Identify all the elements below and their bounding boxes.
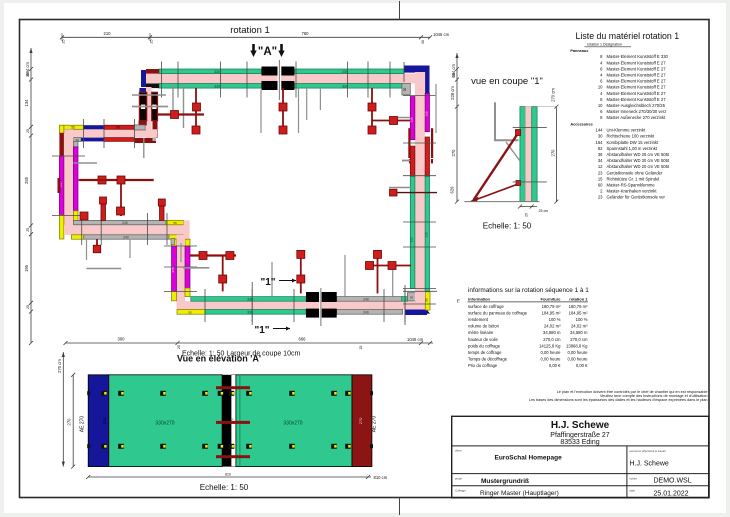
svg-text:55: 55 — [173, 221, 177, 225]
svg-text:25: 25 — [26, 129, 30, 133]
svg-text:vue en coupe "1": vue en coupe "1" — [471, 76, 543, 87]
svg-text:13868,8 Kg: 13868,8 Kg — [566, 343, 588, 348]
svg-text:Master Inneneck 270/30/30 verz: Master Inneneck 270/30/30 verz — [607, 109, 667, 114]
svg-text:25: 25 — [359, 346, 363, 350]
svg-text:Master-Ausgleichsblech 270/25: Master-Ausgleichsblech 270/25 — [607, 103, 666, 108]
svg-text:12: 12 — [598, 164, 603, 169]
svg-text:83533 Eding: 83533 Eding — [560, 439, 599, 446]
svg-text:rotation 1: rotation 1 — [569, 296, 588, 301]
svg-text:25 cm: 25 cm — [539, 209, 549, 213]
svg-text:270,0 cm: 270,0 cm — [543, 337, 561, 342]
svg-text:270: 270 — [67, 418, 72, 426]
svg-text:Echelle: 1: 50: Echelle: 1: 50 — [483, 222, 532, 231]
svg-text:H.J. Schewe: H.J. Schewe — [630, 461, 669, 468]
svg-text:100 %: 100 % — [549, 317, 561, 322]
svg-text:Echelle: 1: 50: Echelle: 1: 50 — [200, 483, 249, 492]
svg-text:134: 134 — [24, 99, 29, 107]
svg-text:184,95 m²: 184,95 m² — [542, 311, 561, 316]
svg-text:10: 10 — [598, 85, 603, 90]
svg-text:poids du coffrage: poids du coffrage — [468, 343, 501, 348]
svg-text:240: 240 — [123, 235, 129, 239]
svg-text:0,00 €: 0,00 € — [576, 363, 588, 368]
svg-text:810: 810 — [225, 473, 231, 477]
svg-text:Vue en élévation 'A': Vue en élévation 'A' — [177, 354, 261, 364]
svg-text:240: 240 — [363, 297, 369, 301]
svg-text:270,0 cm: 270,0 cm — [570, 337, 588, 342]
svg-text:25.01.2022: 25.01.2022 — [654, 490, 689, 497]
svg-text:Master-RS-Spannklemme: Master-RS-Spannklemme — [607, 183, 656, 188]
svg-text:34,580 m: 34,580 m — [543, 330, 561, 335]
svg-text:date: date — [630, 489, 636, 493]
svg-text:240: 240 — [363, 310, 369, 314]
svg-text:30: 30 — [452, 73, 456, 77]
svg-text:Geländer für Gerüstkonsole ver: Geländer für Gerüstkonsole ver — [607, 195, 666, 200]
svg-text:23: 23 — [598, 195, 603, 200]
svg-text:0,00 €: 0,00 € — [549, 363, 561, 368]
svg-text:Temps de décoffrage: Temps de décoffrage — [468, 356, 508, 361]
svg-text:210: 210 — [104, 31, 112, 36]
svg-text:34: 34 — [598, 158, 603, 163]
svg-text:Prix du coffrage: Prix du coffrage — [468, 363, 498, 368]
svg-text:55: 55 — [425, 298, 429, 302]
svg-text:760: 760 — [302, 31, 310, 36]
svg-text:810 cm: 810 cm — [374, 475, 388, 480]
svg-text:270: 270 — [358, 417, 363, 424]
svg-text:fichier: fichier — [630, 477, 638, 481]
svg-text:228 cm: 228 cm — [450, 86, 455, 100]
svg-text:195: 195 — [24, 264, 29, 272]
svg-text:Master Außenecke 270 verzinkt: Master Außenecke 270 verzinkt — [607, 115, 666, 120]
svg-text:Spannstahl 1,00 m verzinkt: Spannstahl 1,00 m verzinkt — [607, 146, 658, 151]
svg-text:100 %: 100 % — [576, 317, 588, 322]
svg-text:surface de coffrage: surface de coffrage — [468, 304, 504, 309]
svg-text:rendement: rendement — [468, 317, 489, 322]
svg-text:"A": "A" — [258, 46, 277, 58]
svg-text:60: 60 — [598, 183, 603, 188]
svg-text:180,79 m²: 180,79 m² — [569, 304, 588, 309]
svg-text:Richtstütze Gr. 1 mit Spindel: Richtstütze Gr. 1 mit Spindel — [607, 176, 660, 181]
svg-text:36: 36 — [598, 152, 603, 157]
svg-text:Fourniture: Fourniture — [541, 296, 562, 301]
svg-text:rotation 1 Désignation: rotation 1 Désignation — [587, 42, 622, 46]
svg-text:240: 240 — [122, 221, 128, 225]
svg-text:Gerüstkonsole ohne Geländer: Gerüstkonsole ohne Geländer — [607, 170, 663, 175]
svg-text:15: 15 — [598, 176, 603, 181]
svg-text:Master-Element Kunststoff E 27: Master-Element Kunststoff E 27 — [607, 91, 667, 96]
svg-text:330: 330 — [214, 84, 220, 88]
svg-text:82: 82 — [598, 146, 603, 151]
svg-text:Master-Kranhaken verzinkt: Master-Kranhaken verzinkt — [607, 189, 658, 194]
svg-text:hauteur de voile: hauteur de voile — [468, 337, 498, 342]
svg-text:25: 25 — [177, 345, 181, 349]
svg-text:projet: projet — [455, 477, 462, 481]
svg-text:25: 25 — [525, 213, 529, 217]
svg-text:temps de coffrage: temps de coffrage — [468, 350, 502, 355]
svg-text:"1": "1" — [254, 325, 269, 336]
svg-text:surface du panneau de coffrage: surface du panneau de coffrage — [468, 311, 528, 316]
svg-text:0,00 heure: 0,00 heure — [567, 356, 588, 361]
svg-text:130: 130 — [424, 111, 428, 116]
svg-text:30: 30 — [598, 134, 603, 139]
svg-text:0,00 heure: 0,00 heure — [567, 350, 588, 355]
svg-text:Les bases des dimensions sont: Les bases des dimensions sont les épaiss… — [529, 398, 708, 402]
svg-text:184,95 m²: 184,95 m² — [569, 311, 588, 316]
svg-text:Master-Element Kunststoff E 27: Master-Element Kunststoff E 27 — [607, 73, 667, 78]
svg-text:Kombiplatte DW 15 verzinkt: Kombiplatte DW 15 verzinkt — [607, 140, 660, 145]
svg-text:Panneaux: Panneaux — [570, 49, 589, 53]
svg-text:rotation 1: rotation 1 — [230, 25, 270, 36]
svg-text:DEMO.WSL: DEMO.WSL — [654, 477, 692, 484]
svg-text:25: 25 — [26, 228, 30, 232]
svg-text:34,580 m: 34,580 m — [570, 330, 588, 335]
svg-text:144: 144 — [596, 128, 604, 133]
svg-text:330x270: 330x270 — [283, 421, 302, 427]
svg-text:mètre linéaire: mètre linéaire — [468, 330, 494, 335]
svg-text:95: 95 — [116, 126, 120, 130]
svg-text:180,79 m²: 180,79 m² — [542, 304, 561, 309]
svg-text:Abstandhalter WD 25 cm VE 505t: Abstandhalter WD 25 cm VE 505t — [607, 152, 670, 157]
svg-text:330: 330 — [342, 84, 348, 88]
svg-text:Master-Element Kunststoff E 27: Master-Element Kunststoff E 27 — [607, 97, 667, 102]
svg-text:1045 cm: 1045 cm — [433, 32, 450, 37]
svg-text:130: 130 — [410, 117, 414, 122]
svg-text:H.J. Schewe: H.J. Schewe — [551, 420, 610, 431]
svg-text:270 cm: 270 cm — [57, 359, 62, 373]
svg-text:Coffrage: Coffrage — [455, 489, 466, 493]
svg-text:255: 255 — [24, 176, 29, 184]
svg-text:14125,8 Kg: 14125,8 Kg — [539, 343, 561, 348]
svg-text:Abstandhalter WD 30 cm VE 505t: Abstandhalter WD 30 cm VE 505t — [607, 158, 670, 163]
svg-text:Liste du matériel rotation 1: Liste du matériel rotation 1 — [576, 31, 680, 41]
svg-text:55: 55 — [71, 126, 75, 130]
svg-text:Master-Element Kunststoff E 27: Master-Element Kunststoff E 27 — [607, 79, 667, 84]
svg-text:300: 300 — [118, 337, 126, 342]
svg-text:Mustergrundriß: Mustergrundriß — [481, 478, 529, 485]
svg-text:Richtschiene 100 verzinkt: Richtschiene 100 verzinkt — [607, 134, 656, 139]
svg-text:Master-Element Kunststoff E 27: Master-Element Kunststoff E 27 — [607, 66, 667, 71]
svg-text:270 cm: 270 cm — [551, 88, 556, 102]
svg-text:270: 270 — [102, 417, 107, 424]
svg-text:55: 55 — [188, 310, 192, 314]
svg-text:24,02 m³: 24,02 m³ — [571, 324, 588, 329]
svg-text:629: 629 — [450, 186, 455, 194]
svg-text:Pfaffingerstraße 27: Pfaffingerstraße 27 — [550, 432, 610, 439]
svg-text:AE 270: AE 270 — [80, 416, 86, 433]
svg-text:Master-Element Kunststoff E 33: Master-Element Kunststoff E 330 — [607, 54, 669, 59]
svg-text:informations sur la rotation: informations sur la rotation séquence 1 … — [468, 287, 589, 294]
svg-text:30: 30 — [403, 88, 407, 92]
svg-text:230: 230 — [342, 70, 348, 74]
svg-text:Uni-Klemme verzinkt: Uni-Klemme verzinkt — [607, 128, 646, 133]
svg-text:Abstandhalter WD 20 cm VE 505t: Abstandhalter WD 20 cm VE 505t — [607, 164, 670, 169]
svg-text:270: 270 — [451, 149, 456, 157]
svg-text:24,02 m³: 24,02 m³ — [544, 324, 561, 329]
svg-text:Accessoires: Accessoires — [570, 123, 592, 127]
svg-text:330: 330 — [214, 70, 220, 74]
svg-text:1045 cm: 1045 cm — [407, 337, 424, 342]
svg-text:volume de béton: volume de béton — [468, 324, 500, 329]
svg-text:0,00 heure: 0,00 heure — [540, 350, 561, 355]
svg-text:AE 270: AE 270 — [372, 416, 378, 433]
svg-text:666: 666 — [299, 337, 307, 342]
svg-text:23: 23 — [598, 170, 603, 175]
svg-text:330x270: 330x270 — [155, 421, 174, 427]
svg-text:10: 10 — [598, 103, 603, 108]
svg-text:Ringer Master (Hauptlager): Ringer Master (Hauptlager) — [480, 490, 559, 497]
svg-text:270: 270 — [551, 149, 556, 157]
svg-text:30: 30 — [421, 40, 425, 44]
svg-text:30: 30 — [26, 73, 30, 77]
svg-text:Master-Element Kunststoff E 27: Master-Element Kunststoff E 27 — [607, 85, 667, 90]
svg-text:30: 30 — [410, 295, 414, 299]
svg-text:270: 270 — [171, 267, 175, 272]
svg-text:Master-Element Kunststoff E 27: Master-Element Kunststoff E 27 — [607, 60, 667, 65]
svg-text:75: 75 — [457, 299, 461, 303]
svg-text:25: 25 — [26, 305, 30, 309]
svg-text:"1": "1" — [260, 277, 275, 288]
svg-text:personne effectuant le travail: personne effectuant le travail — [630, 449, 666, 453]
svg-text:client: client — [455, 449, 462, 453]
svg-text:164: 164 — [596, 140, 604, 145]
svg-text:330: 330 — [410, 237, 414, 242]
svg-text:EuroSchal Homepage: EuroSchal Homepage — [495, 455, 563, 462]
svg-text:information: information — [468, 296, 491, 301]
svg-text:0,00 heure: 0,00 heure — [540, 356, 561, 361]
svg-text:330: 330 — [424, 232, 428, 237]
